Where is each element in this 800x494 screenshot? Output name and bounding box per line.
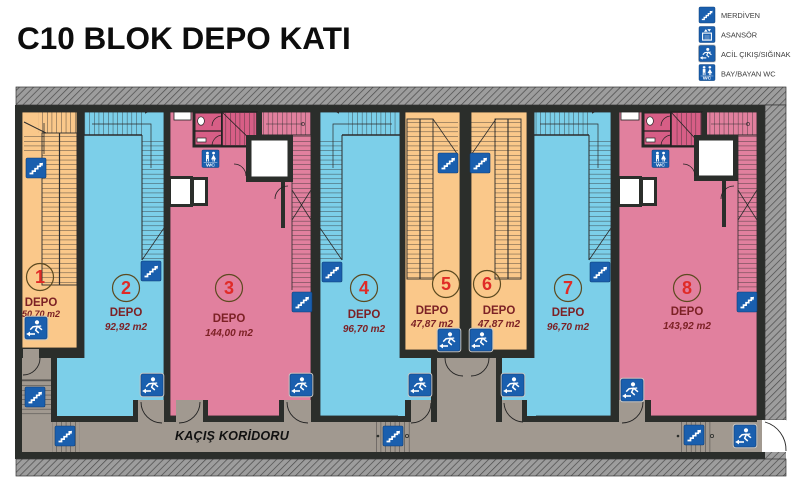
svg-text:MERDİVEN: MERDİVEN (721, 11, 760, 20)
svg-text:DEPO: DEPO (483, 305, 516, 317)
svg-text:96,70 m2: 96,70 m2 (343, 324, 386, 335)
svg-text:7: 7 (563, 278, 573, 298)
svg-text:8: 8 (682, 278, 692, 298)
svg-text:4: 4 (359, 278, 369, 298)
svg-text:BAY/BAYAN WC: BAY/BAYAN WC (721, 70, 776, 79)
svg-text:DEPO: DEPO (348, 309, 381, 321)
svg-text:143,92 m2: 143,92 m2 (663, 321, 711, 332)
svg-text:DEPO: DEPO (213, 313, 246, 325)
svg-text:DEPO: DEPO (671, 306, 704, 318)
svg-text:92,92 m2: 92,92 m2 (105, 322, 148, 333)
svg-text:DEPO: DEPO (110, 307, 143, 319)
svg-text:96,70 m2: 96,70 m2 (547, 322, 590, 333)
svg-text:C10 BLOK DEPO KATI: C10 BLOK DEPO KATI (17, 20, 351, 56)
svg-text:3: 3 (224, 278, 234, 298)
svg-text:DEPO: DEPO (25, 297, 58, 309)
svg-text:5: 5 (441, 274, 451, 294)
svg-text:ACİL ÇIKIŞ/SIĞINAK: ACİL ÇIKIŞ/SIĞINAK (721, 50, 791, 59)
svg-text:DEPO: DEPO (416, 305, 449, 317)
svg-text:6: 6 (482, 274, 492, 294)
svg-text:144,00 m2: 144,00 m2 (205, 328, 253, 339)
svg-text:DEPO: DEPO (552, 307, 585, 319)
svg-text:ASANSÖR: ASANSÖR (721, 31, 757, 40)
svg-text:KAÇIŞ KORİDORU: KAÇIŞ KORİDORU (175, 428, 290, 443)
svg-text:2: 2 (121, 278, 131, 298)
svg-text:1: 1 (35, 267, 45, 287)
